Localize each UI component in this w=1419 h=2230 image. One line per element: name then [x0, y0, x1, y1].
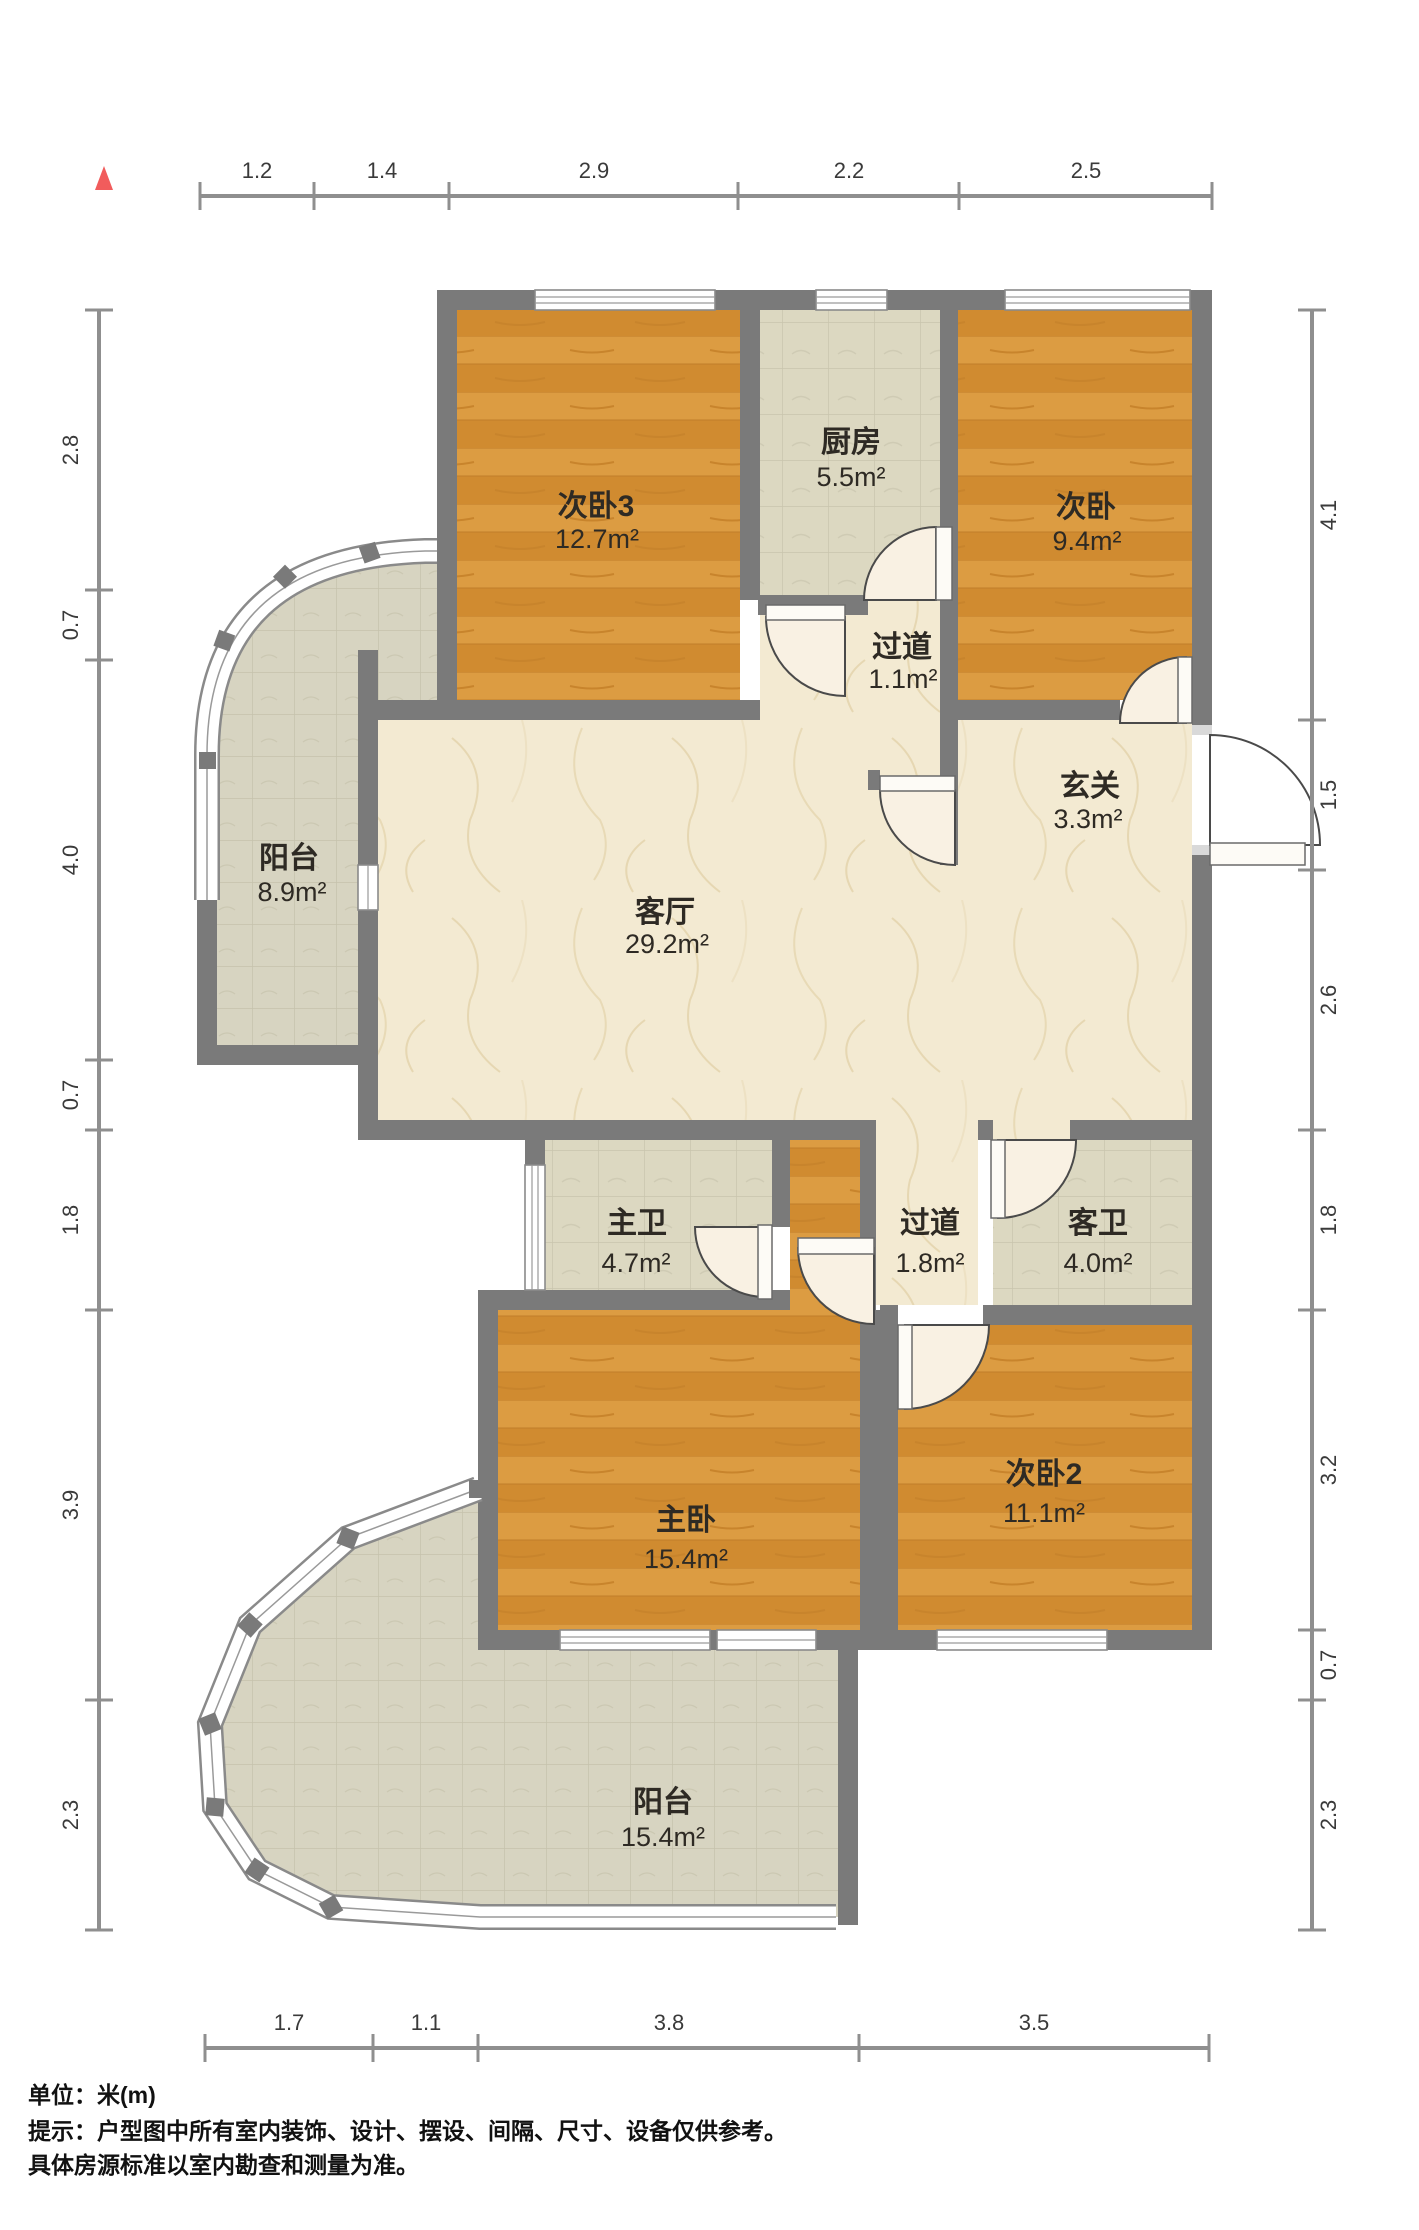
dim-top-2: 2.9	[579, 158, 610, 183]
living-area: 29.2m²	[625, 929, 709, 959]
hall-living-door-leaf	[880, 776, 955, 791]
window-master-bath	[525, 1165, 545, 1290]
balcony-door-band	[717, 1630, 816, 1650]
corridor-mid-area: 1.8m²	[895, 1248, 964, 1278]
kitchen-name: 厨房	[821, 426, 881, 459]
balcony-bottom-name: 阳台	[633, 1785, 693, 1819]
window-bedroom-top	[1005, 290, 1190, 310]
guest-bath-area: 4.0m²	[1063, 1248, 1132, 1278]
entry-name: 玄关	[1060, 769, 1120, 803]
bedroom3-area: 12.7m²	[555, 524, 639, 554]
balcony-left-area: 8.9m²	[257, 877, 326, 907]
dim-right-0: 4.1	[1316, 500, 1341, 531]
kitchen-area: 5.5m²	[816, 462, 885, 492]
dim-top-0: 1.2	[242, 158, 273, 183]
dim-top-1: 1.4	[367, 158, 398, 183]
floor-master-bedroom	[498, 1310, 860, 1630]
bedroom2-area: 11.1m²	[1003, 1498, 1085, 1528]
floorplan-page: 次卧3 12.7m² 厨房 5.5m² 次卧 9.4m² 过道 1.1m² 玄关…	[0, 0, 1419, 2230]
dim-right-1: 1.5	[1316, 780, 1341, 811]
master-bath-door-leaf	[758, 1225, 772, 1299]
living-name: 客厅	[635, 895, 695, 929]
dim-right-5: 0.7	[1316, 1650, 1341, 1681]
corridor-top-area: 1.1m²	[868, 664, 937, 694]
north-arrow-icon	[95, 166, 113, 190]
window-bedroom2-bottom	[937, 1630, 1107, 1650]
window-living-left	[358, 865, 378, 910]
footnote-tip2: 具体房源标准以室内勘查和测量为准。	[28, 2152, 419, 2178]
balcony-left-name: 阳台	[259, 841, 319, 875]
bedroom-top-area: 9.4m²	[1052, 526, 1121, 556]
dim-top-3: 2.2	[834, 158, 865, 183]
dim-left-3: 0.7	[58, 1080, 83, 1111]
guest-bath-door-leaf	[991, 1140, 1005, 1218]
corridor-mid-name: 过道	[900, 1207, 960, 1240]
dim-bottom-1: 1.1	[411, 2010, 442, 2035]
dim-left-6: 2.3	[58, 1800, 83, 1831]
bedroom-top-name: 次卧	[1056, 491, 1116, 524]
master-bedroom-door-leaf	[798, 1238, 874, 1254]
bedroom2-door-leaf	[898, 1325, 912, 1409]
dim-left-0: 2.8	[58, 435, 83, 466]
master-bedroom-name: 主卧	[656, 1504, 716, 1537]
entry-jamb-bottom	[1192, 845, 1212, 855]
bedroom2-name: 次卧2	[1006, 1458, 1083, 1491]
window-master-bedroom-bottom	[560, 1630, 710, 1650]
corridor-top-name: 过道	[872, 631, 932, 664]
dim-top-4: 2.5	[1071, 158, 1102, 183]
entry-area: 3.3m²	[1053, 804, 1122, 834]
bedroom3-name: 次卧3	[558, 490, 635, 523]
dim-left-4: 1.8	[58, 1205, 83, 1236]
kitchen-door-leaf	[936, 527, 952, 600]
dim-right-2: 2.6	[1316, 985, 1341, 1016]
entry-jamb-top	[1192, 725, 1212, 735]
dim-left-1: 0.7	[58, 610, 83, 641]
floorplan-canvas: 次卧3 12.7m² 厨房 5.5m² 次卧 9.4m² 过道 1.1m² 玄关…	[0, 0, 1419, 2230]
bedroom-top-door-leaf	[1178, 657, 1192, 723]
footnotes: 单位：米(m) 提示：户型图中所有室内装饰、设计、摆设、间隔、尺寸、设备仅供参考…	[28, 2082, 787, 2178]
guest-bath-name: 客卫	[1068, 1206, 1128, 1240]
dim-left-2: 4.0	[58, 845, 83, 876]
dim-right-3: 1.8	[1316, 1205, 1341, 1236]
balcony-bottom-area: 15.4m²	[621, 1822, 705, 1852]
dim-bottom-3: 3.5	[1019, 2010, 1050, 2035]
entry-door-leaf	[1210, 843, 1305, 865]
dim-right-6: 2.3	[1316, 1800, 1341, 1831]
master-bedroom-area: 15.4m²	[644, 1544, 728, 1574]
master-bath-name: 主卫	[607, 1207, 667, 1240]
footnote-tip1: 提示：户型图中所有室内装饰、设计、摆设、间隔、尺寸、设备仅供参考。	[28, 2118, 787, 2144]
window-bedroom3-top	[535, 290, 715, 310]
dim-bottom-0: 1.7	[274, 2010, 305, 2035]
master-bath-area: 4.7m²	[601, 1248, 670, 1278]
window-kitchen-top	[816, 290, 887, 310]
dim-bottom-2: 3.8	[654, 2010, 685, 2035]
entry-door-arc	[1210, 735, 1320, 845]
dim-left-5: 3.9	[58, 1490, 83, 1521]
dim-right-4: 3.2	[1316, 1455, 1341, 1486]
footnote-unit: 单位：米(m)	[28, 2082, 156, 2108]
bedroom3-door-leaf	[766, 605, 845, 620]
